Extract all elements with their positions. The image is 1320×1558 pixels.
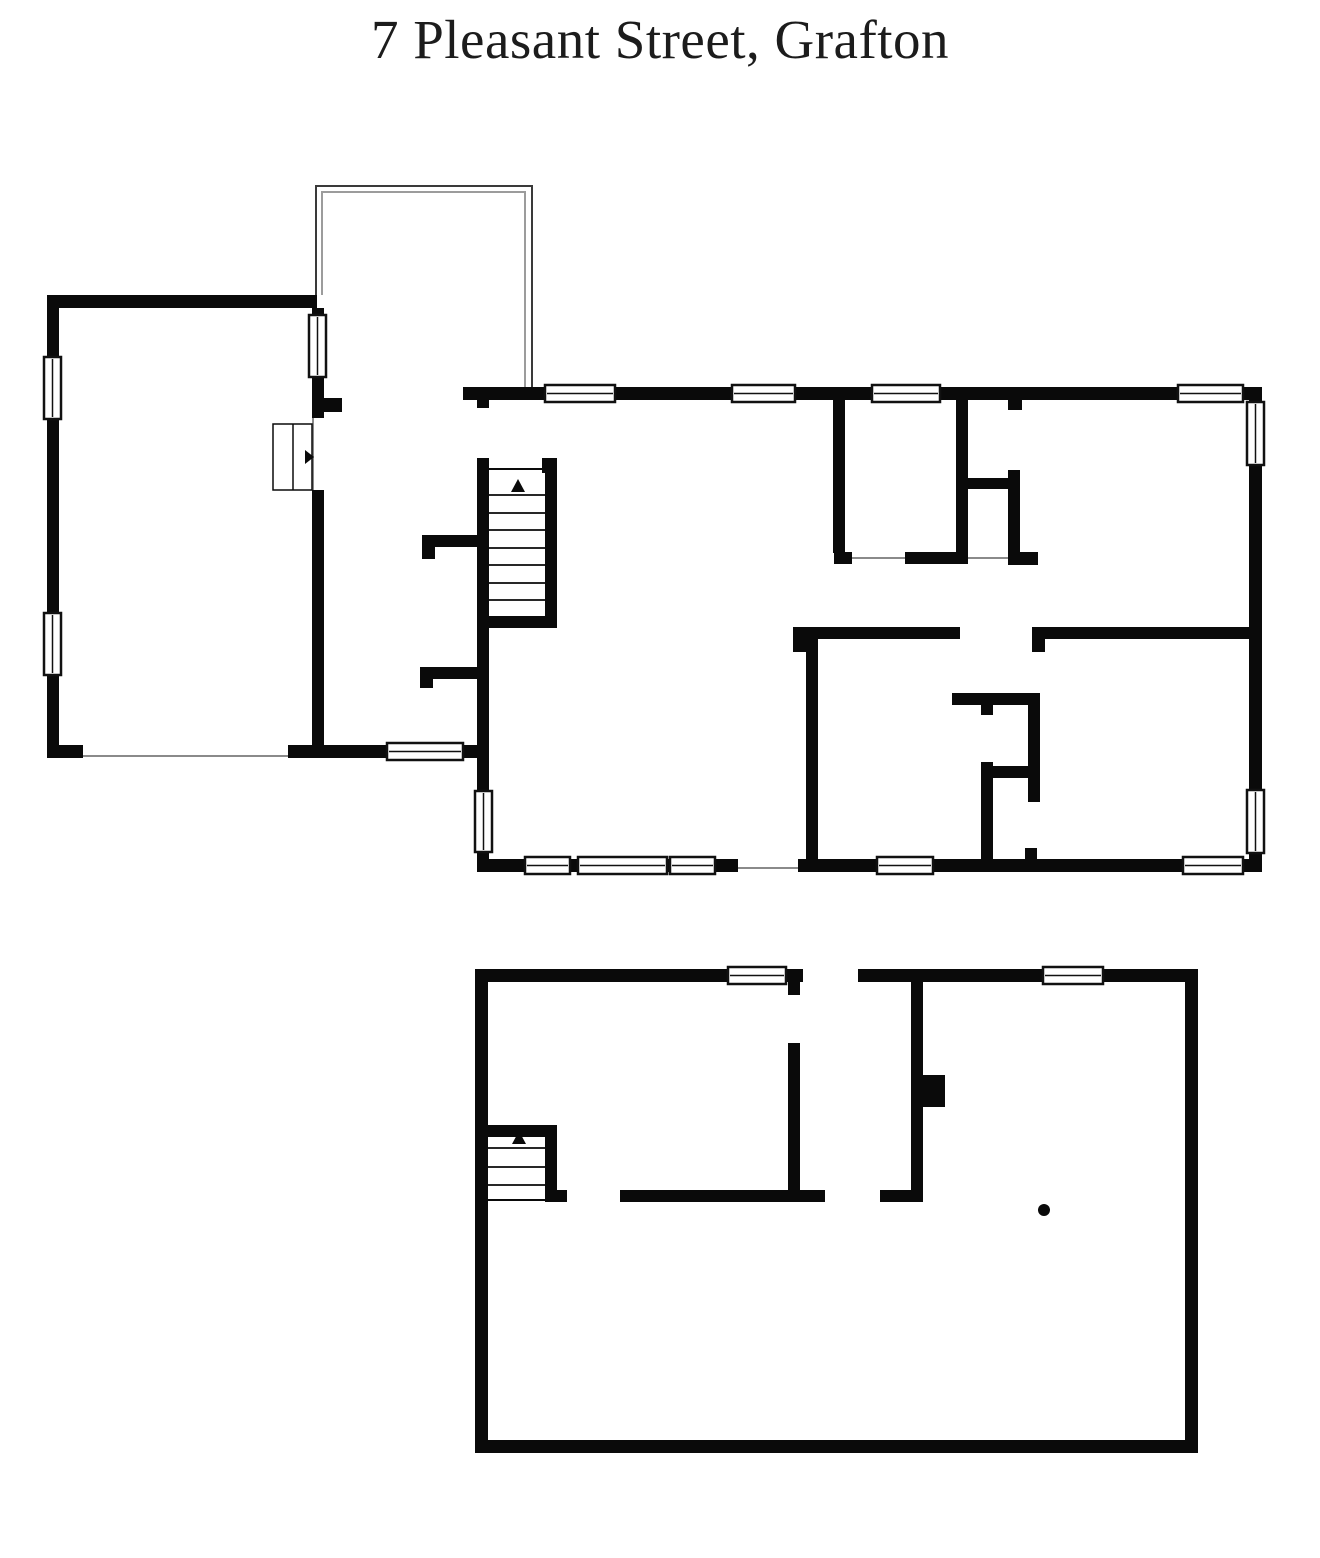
wall-segment [793,627,806,652]
porch-outline [316,186,532,387]
wall-segment [1025,848,1037,860]
wall-segment [475,1440,1198,1453]
wall-segment [880,1190,923,1202]
wall-segment [834,552,852,564]
window [44,613,61,675]
wall-segment [981,762,993,860]
window [1178,385,1243,402]
window [1043,967,1103,984]
wall-segment [47,295,317,308]
window [1247,790,1264,853]
wall-segment [477,400,489,408]
wall-segment [47,745,83,758]
wall-segment [475,969,488,1452]
wall-segment [788,982,800,995]
wall-segment [956,400,968,553]
window [44,357,61,419]
wall-segment [422,535,435,559]
window [872,385,940,402]
wall-segment [1032,627,1045,652]
window [309,315,326,377]
wall-segment [833,400,845,553]
wall-segment [542,458,557,473]
wall-segment [905,552,968,564]
wall-segment [858,969,1198,982]
wall-segment [985,766,1040,778]
wall-segment [952,693,1040,705]
wall-segment [806,633,818,860]
window [387,743,463,760]
window [1183,857,1243,874]
window [525,857,570,874]
wall-segment [1185,969,1198,1452]
wall-segment [545,458,557,628]
wall-segment [1008,552,1038,565]
wall-segment [477,852,489,872]
window [578,857,667,874]
wall-segment [312,398,342,412]
floorplan-drawing [0,0,1320,1558]
window [670,857,715,874]
wall-segment [793,627,960,639]
wall-segment [1008,400,1022,410]
window [877,857,933,874]
window [1247,402,1264,465]
wall-segment [1028,693,1040,802]
wall-segment [545,1190,567,1202]
porch-outline-layer [316,186,532,387]
windows-layer [44,315,1264,984]
wall-segment [915,1075,945,1107]
window [475,791,492,852]
window [732,385,795,402]
stair-treads-layer [488,495,545,1185]
wall-segment [480,616,557,628]
wall-segment [981,705,993,715]
wall-segment [1008,470,1020,553]
porch-outline [322,192,525,387]
window [545,385,615,402]
wall-segment [545,1125,557,1198]
wall-segment [420,667,433,688]
floorplan-page: 7 Pleasant Street, Grafton [0,0,1320,1558]
support-column-dot [1038,1204,1050,1216]
wall-segment [312,490,324,758]
wall-segment [1032,627,1249,639]
wall-segment [788,1043,800,1202]
window [728,967,786,984]
stairs-up-arrow-icon [511,479,525,492]
wall-segment [620,1190,825,1202]
